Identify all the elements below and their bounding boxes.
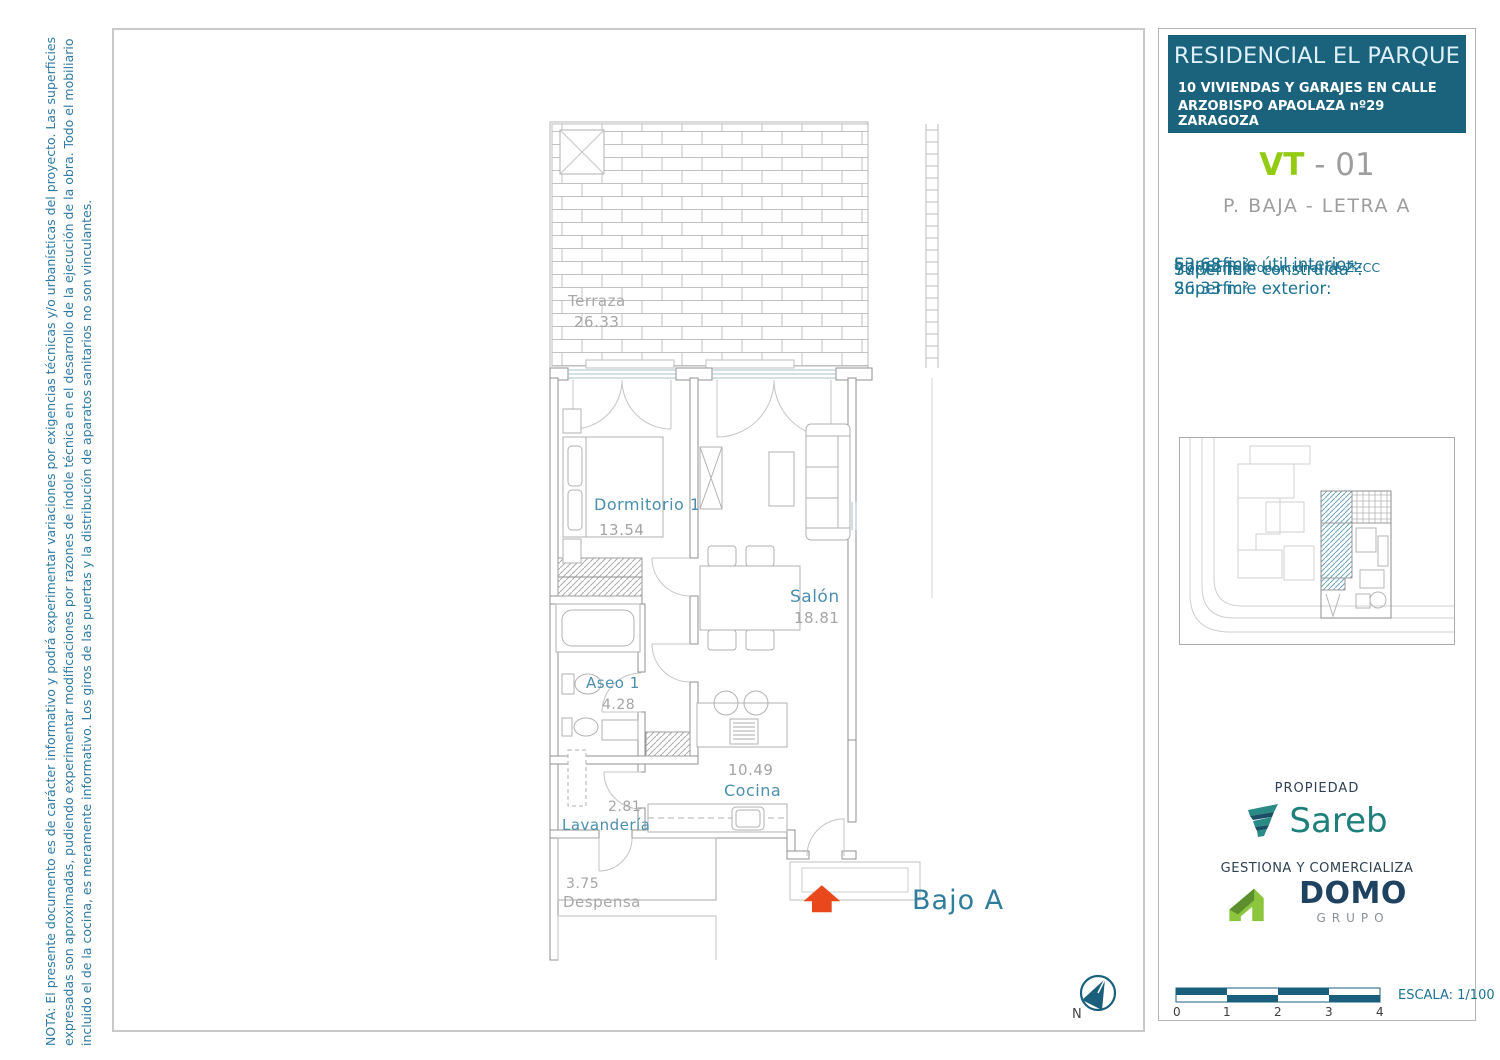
floor-label: P. BAJA - LETRA A (1159, 195, 1475, 217)
dormitorio-area-value: 13.54 (599, 521, 644, 539)
highlighted-building (1321, 491, 1391, 618)
scale-bar-row: 0 1 2 3 4 ESCALA: 1/100 (1172, 982, 1464, 1022)
terraza-label: Terraza (567, 292, 626, 310)
floor-plan-drawing: Terraza 26.33 (542, 118, 942, 968)
project-title: RESIDENCIAL EL PARQUE (1168, 43, 1466, 69)
propiedad-label: PROPIEDAD (1159, 781, 1475, 796)
domo-sub-wordmark: GRUPO (1316, 911, 1389, 925)
terraza-fence (926, 124, 938, 368)
floor-plan-sheet: { "note": { "line1": "NOTA: El presente … (0, 0, 1500, 1060)
surface-areas: Superficie útil interior: 53,68 m² Super… (1174, 255, 1464, 280)
sareb-logo: Sareb (1159, 801, 1475, 841)
disclaimer-line-2: expresadas son aproximadas, pudiendo exp… (60, 14, 78, 1046)
skylight-shaft-icon (560, 130, 604, 174)
scale-tick-1: 1 (1223, 1005, 1231, 1019)
despensa-label: Despensa (563, 893, 641, 911)
scale-tick-0: 0 (1173, 1005, 1181, 1019)
gestiona-label: GESTIONA Y COMERCIALIZA (1159, 861, 1475, 876)
scale-label: ESCALA: 1/100 (1398, 988, 1495, 1003)
disclaimer-note: NOTA: El presente documento es de caráct… (42, 14, 100, 1046)
surface-exterior-value: 26,33 m² (1174, 279, 1249, 298)
salon-area-value: 18.81 (794, 609, 839, 627)
north-label: N (1072, 1007, 1082, 1022)
title-block-panel: RESIDENCIAL EL PARQUE 10 VIVIENDAS Y GAR… (1158, 28, 1476, 1021)
cocina-area-value: 10.49 (728, 761, 773, 779)
sareb-logo-icon (1246, 803, 1280, 839)
terraza-area-value: 26.33 (574, 313, 619, 331)
unit-code-prefix: VT (1259, 147, 1304, 183)
scale-tick-2: 2 (1274, 1005, 1282, 1019)
domo-logo: DOMO GRUPO (1159, 879, 1475, 925)
disclaimer-line-3: incluido el de la cocina, es meramente i… (78, 14, 96, 1046)
despensa-area-value: 3.75 (566, 876, 599, 892)
site-location-map (1179, 437, 1455, 645)
lavanderia-label: Lavandería (562, 816, 650, 834)
aseo-area-value: 4.28 (602, 697, 635, 713)
unit-code-separator: - (1304, 147, 1335, 183)
salon-label: Salón (790, 587, 840, 607)
project-subtitle-2: ARZOBISPO APAOLAZA nº29 ZARAGOZA (1178, 99, 1466, 129)
scale-bar: 0 1 2 3 4 (1172, 982, 1384, 1022)
scale-tick-4: 4 (1376, 1005, 1384, 1019)
project-header: RESIDENCIAL EL PARQUE 10 VIVIENDAS Y GAR… (1168, 35, 1466, 133)
domo-wordmark: DOMO (1299, 879, 1407, 909)
scale-tick-3: 3 (1325, 1005, 1333, 1019)
unit-code: VT - 01 (1159, 147, 1475, 183)
project-subtitle-1: 10 VIVIENDAS Y GARAJES EN CALLE (1178, 81, 1437, 96)
unit-code-number: 01 (1335, 147, 1374, 183)
unit-callout: Bajo A (800, 884, 1004, 916)
disclaimer-line-1: NOTA: El presente documento es de caráct… (42, 14, 60, 1046)
sareb-wordmark: Sareb (1289, 801, 1387, 841)
north-compass-icon: N (1060, 958, 1136, 1024)
unit-label: Bajo A (912, 885, 1004, 916)
lavanderia-area-value: 2.81 (608, 799, 641, 815)
domo-logo-icon (1227, 881, 1289, 923)
surface-built-value: 77,74 m² (1174, 260, 1249, 279)
dormitorio-label: Dormitorio 1 (594, 495, 701, 514)
unit-arrow-icon (800, 884, 856, 916)
entry-hall-outline (558, 916, 716, 960)
cocina-label: Cocina (724, 781, 781, 800)
hall-closet-hatch (646, 732, 690, 756)
aseo-label: Aseo 1 (586, 674, 640, 692)
